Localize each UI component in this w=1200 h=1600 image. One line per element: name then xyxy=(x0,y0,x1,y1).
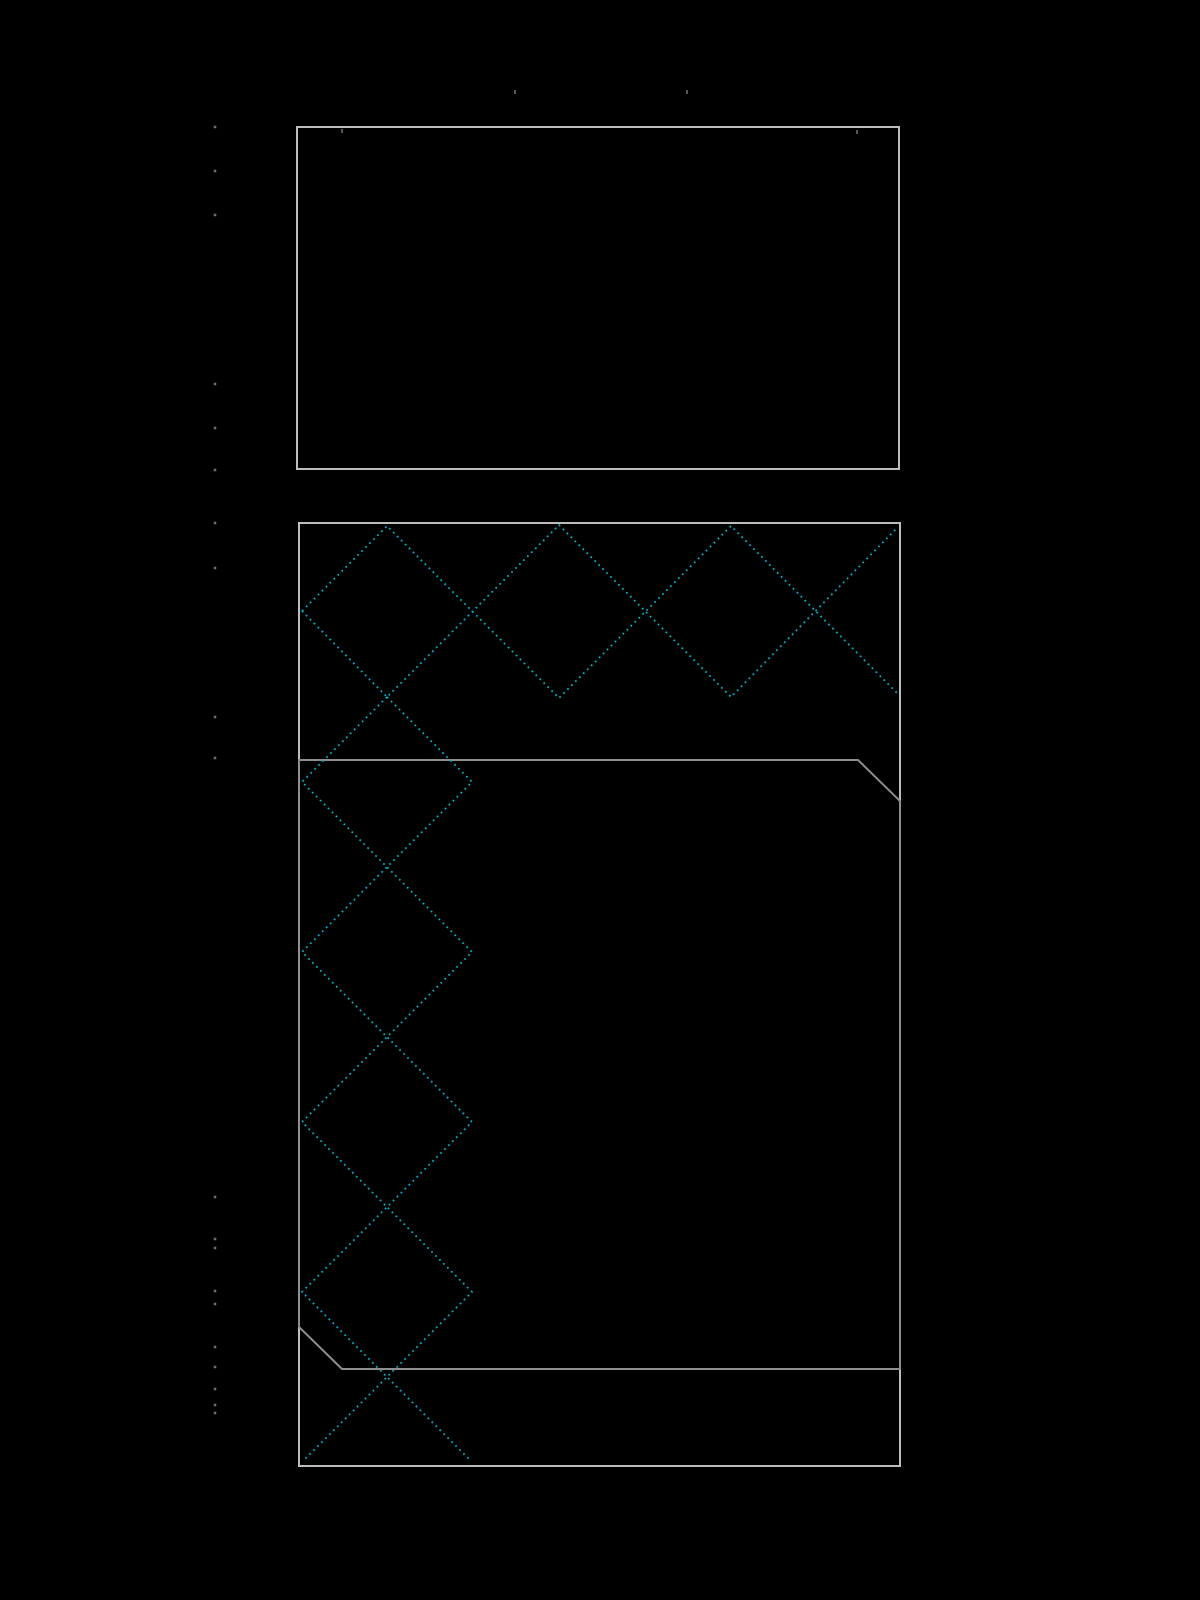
tick-dot xyxy=(214,716,217,719)
tick-dot xyxy=(214,1247,217,1250)
tick-dot xyxy=(214,383,217,386)
tick-dot xyxy=(214,1388,217,1391)
tick-dot xyxy=(214,469,217,472)
tick-dot xyxy=(214,126,217,129)
tick-dot xyxy=(214,427,217,430)
faint-mark xyxy=(856,130,858,134)
tick-dot xyxy=(214,1346,217,1349)
faint-mark xyxy=(514,90,516,94)
tick-dot xyxy=(214,1303,217,1306)
tick-dot xyxy=(214,1290,217,1293)
tick-dot xyxy=(214,522,217,525)
tick-dot xyxy=(214,1404,217,1407)
faint-mark xyxy=(686,90,688,94)
canvas-background xyxy=(0,0,1200,1600)
tick-dot xyxy=(214,1238,217,1241)
tick-dot xyxy=(214,170,217,173)
tick-dot xyxy=(214,1366,217,1369)
tick-dot xyxy=(214,757,217,760)
tick-dot xyxy=(214,1196,217,1199)
tick-dot xyxy=(214,214,217,217)
app-window xyxy=(0,0,1200,1600)
faint-mark xyxy=(341,129,343,133)
drawing-canvas[interactable] xyxy=(0,0,1200,1600)
tick-dot xyxy=(214,1412,217,1415)
tick-dot xyxy=(214,567,217,570)
